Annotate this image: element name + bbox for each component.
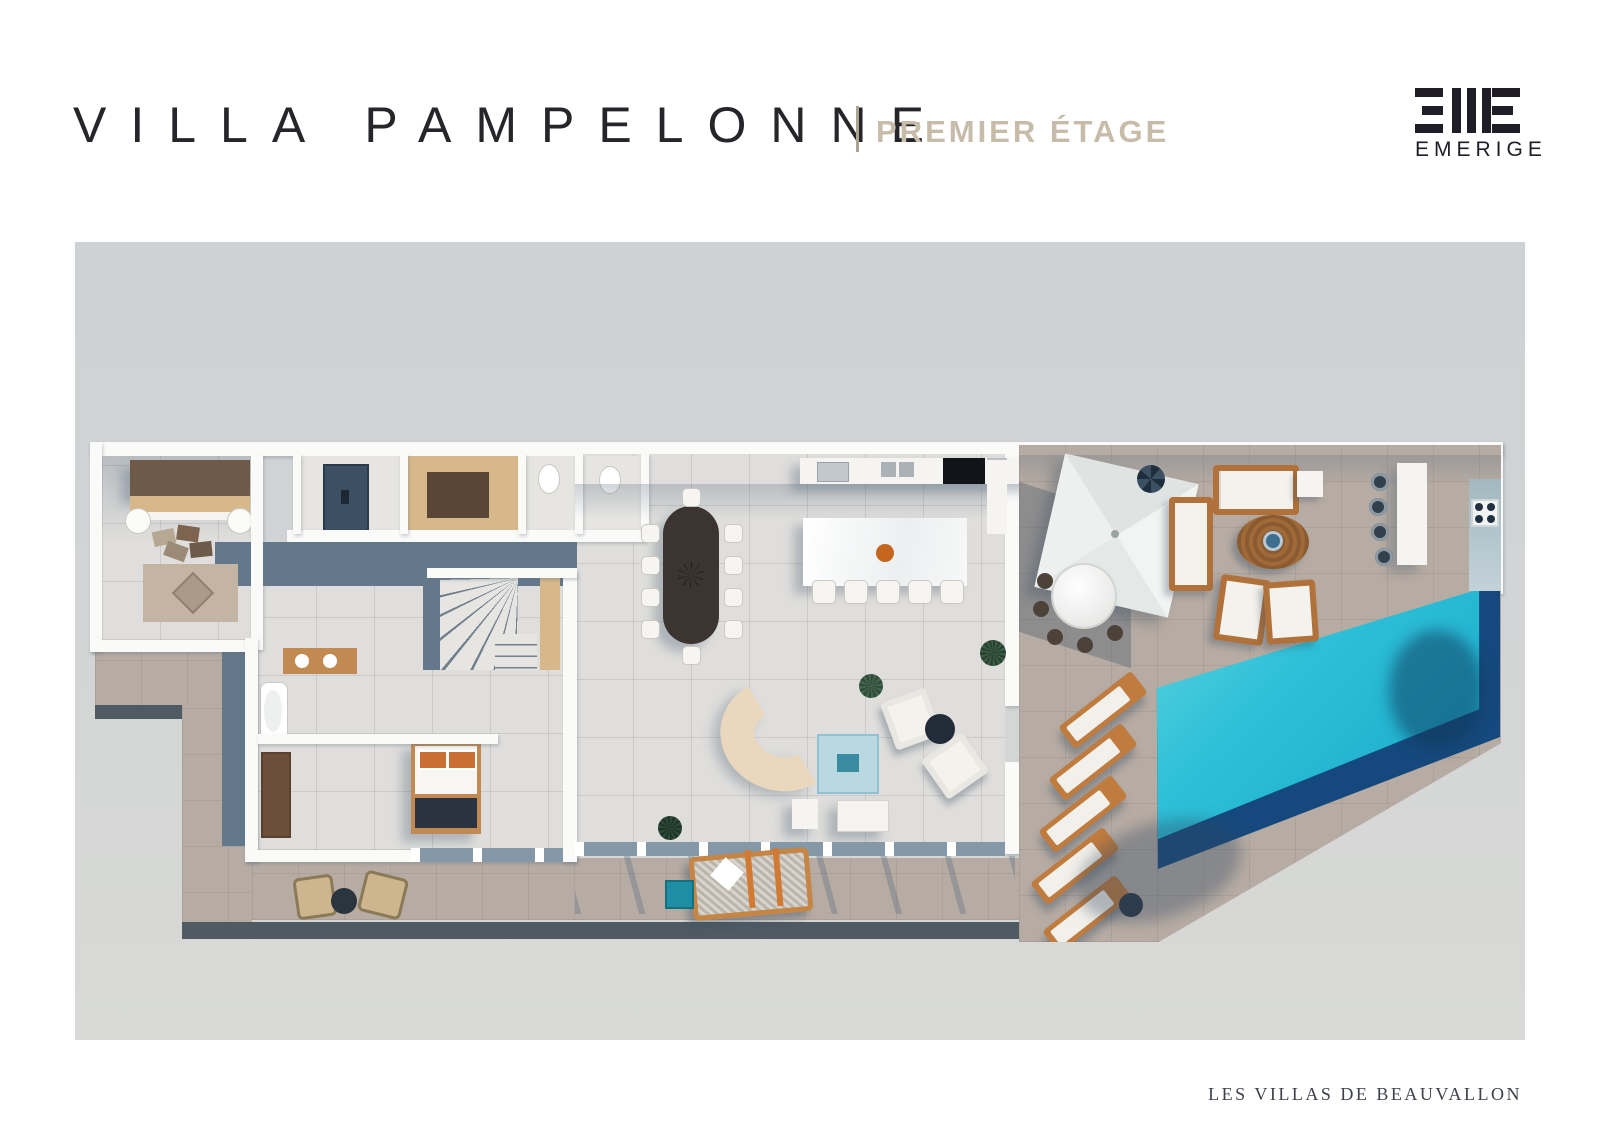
burner-2 (1487, 503, 1495, 511)
wall-lounge-south (90, 638, 260, 652)
outdoor-dining-chair-3 (1047, 629, 1063, 645)
wardrobe (261, 752, 291, 838)
pergola-center-finial (1111, 530, 1119, 538)
outdoor-dining-chair-4 (1077, 637, 1093, 653)
bar-counter (1397, 463, 1427, 565)
wall-stairs-north (427, 568, 577, 578)
floor-plan-render (75, 242, 1525, 1040)
emerige-logo-mark-icon (1415, 88, 1520, 133)
wall-living-east-lower (1005, 762, 1019, 854)
outdoor-dining-chair-5 (1107, 625, 1123, 641)
dining-chair-2 (641, 556, 660, 575)
cooktop-1 (881, 462, 896, 477)
bathtub-basin (264, 690, 282, 732)
emerige-logo: EMERIGE (1415, 88, 1523, 166)
bar-stool-1 (1371, 473, 1389, 491)
kitchen-range (943, 458, 985, 484)
island-stool-4 (908, 580, 932, 604)
elevator-door (341, 490, 349, 504)
brochure-page: VILLA PAMPELONNE PREMIER ÉTAGE EMERIGE (0, 0, 1600, 1131)
outdoor-dining-chair-2 (1033, 601, 1049, 617)
stair-bench (540, 578, 560, 670)
bar-stool-4 (1375, 548, 1393, 566)
pool-deck (1019, 445, 1501, 942)
plant-small (859, 674, 883, 698)
lounge-cushion-4 (189, 541, 212, 558)
bar-stool-2 (1369, 498, 1387, 516)
wall-living-east-upper (1005, 454, 1019, 706)
dining-chair-4 (641, 620, 660, 639)
living-north-shadow (575, 484, 1005, 520)
wall-lounge-east (251, 454, 263, 650)
chandelier-icon (678, 562, 704, 588)
lounge-daybed-back (130, 460, 250, 496)
ceiling-fan-icon (1137, 465, 1165, 493)
outdoor-armchair-2 (1263, 579, 1319, 644)
cooktop-2 (899, 462, 914, 477)
island-stool-1 (812, 580, 836, 604)
stair-landing-strip (423, 578, 440, 670)
coffee-table (837, 754, 859, 772)
blue-bowl (1263, 531, 1283, 551)
kitchen-cabinet-column (987, 458, 1007, 534)
page-title: VILLA PAMPELONNE (73, 96, 948, 154)
tree-shadow-on-pool (1389, 630, 1484, 750)
wall-bedblock-west (245, 638, 258, 862)
cube-stool-2 (837, 800, 889, 832)
outdoor-dining-table (1053, 565, 1115, 627)
wall-bath-divider (258, 734, 498, 744)
lounge-side-table-right (227, 508, 253, 534)
dining-chair-3 (641, 588, 660, 607)
island-stool-2 (844, 580, 868, 604)
dining-chair-8 (724, 620, 743, 639)
terrace-south-edge (182, 922, 1030, 939)
burner-3 (1475, 515, 1483, 523)
emerige-wordmark: EMERIGE (1415, 138, 1521, 162)
dining-chair-5 (724, 524, 743, 543)
vanity-sink-1 (295, 654, 309, 668)
lounge-side-table-left (125, 508, 151, 534)
footer-caption: LES VILLAS DE BEAUVALLON (0, 1084, 1522, 1105)
staircase-straight-flight (495, 634, 537, 670)
burner-4 (1487, 515, 1495, 523)
terrace-side-table (331, 888, 357, 914)
wall-west (90, 442, 102, 652)
teal-cube-stool (665, 880, 694, 909)
dressing-rug (427, 472, 489, 518)
wall-stairs-east (563, 572, 577, 862)
title-divider (856, 106, 859, 152)
partition-3 (518, 454, 526, 534)
outdoor-cube-table (1297, 471, 1323, 497)
kitchen-sink (817, 462, 849, 482)
partition-2 (400, 454, 408, 534)
burner-1 (1475, 503, 1483, 511)
outdoor-chaise (1169, 497, 1213, 591)
terrace-palm-planter (658, 816, 682, 840)
island-stool-3 (876, 580, 900, 604)
outdoor-kitchen (1469, 479, 1501, 591)
bed-pillow-1 (418, 750, 448, 770)
bar-stool-3 (1371, 523, 1389, 541)
island-stool-5 (940, 580, 964, 604)
dining-chair-6 (724, 556, 743, 575)
dining-chair-7 (724, 588, 743, 607)
dining-chair-1 (641, 524, 660, 543)
lounge-cushion-2 (176, 525, 200, 543)
wc-basin (538, 464, 560, 494)
plant-tall (980, 640, 1006, 666)
cube-stool-1 (792, 799, 818, 829)
bed-pillow-2 (447, 750, 477, 770)
corridor-floor (215, 542, 577, 586)
dining-chair-10 (682, 646, 701, 665)
wall-corridor-north (287, 530, 647, 542)
terrace-west-edge (95, 705, 183, 719)
outdoor-dining-chair-1 (1037, 573, 1053, 589)
floor-subtitle: PREMIER ÉTAGE (876, 114, 1169, 150)
partition-1 (293, 454, 301, 534)
outdoor-sofa (1213, 465, 1299, 515)
vanity-sink-2 (323, 654, 337, 668)
dining-chair-9 (682, 488, 701, 507)
bed-throw (415, 798, 477, 828)
island-dish (876, 544, 894, 562)
bedroom-south-glazing (411, 848, 563, 862)
